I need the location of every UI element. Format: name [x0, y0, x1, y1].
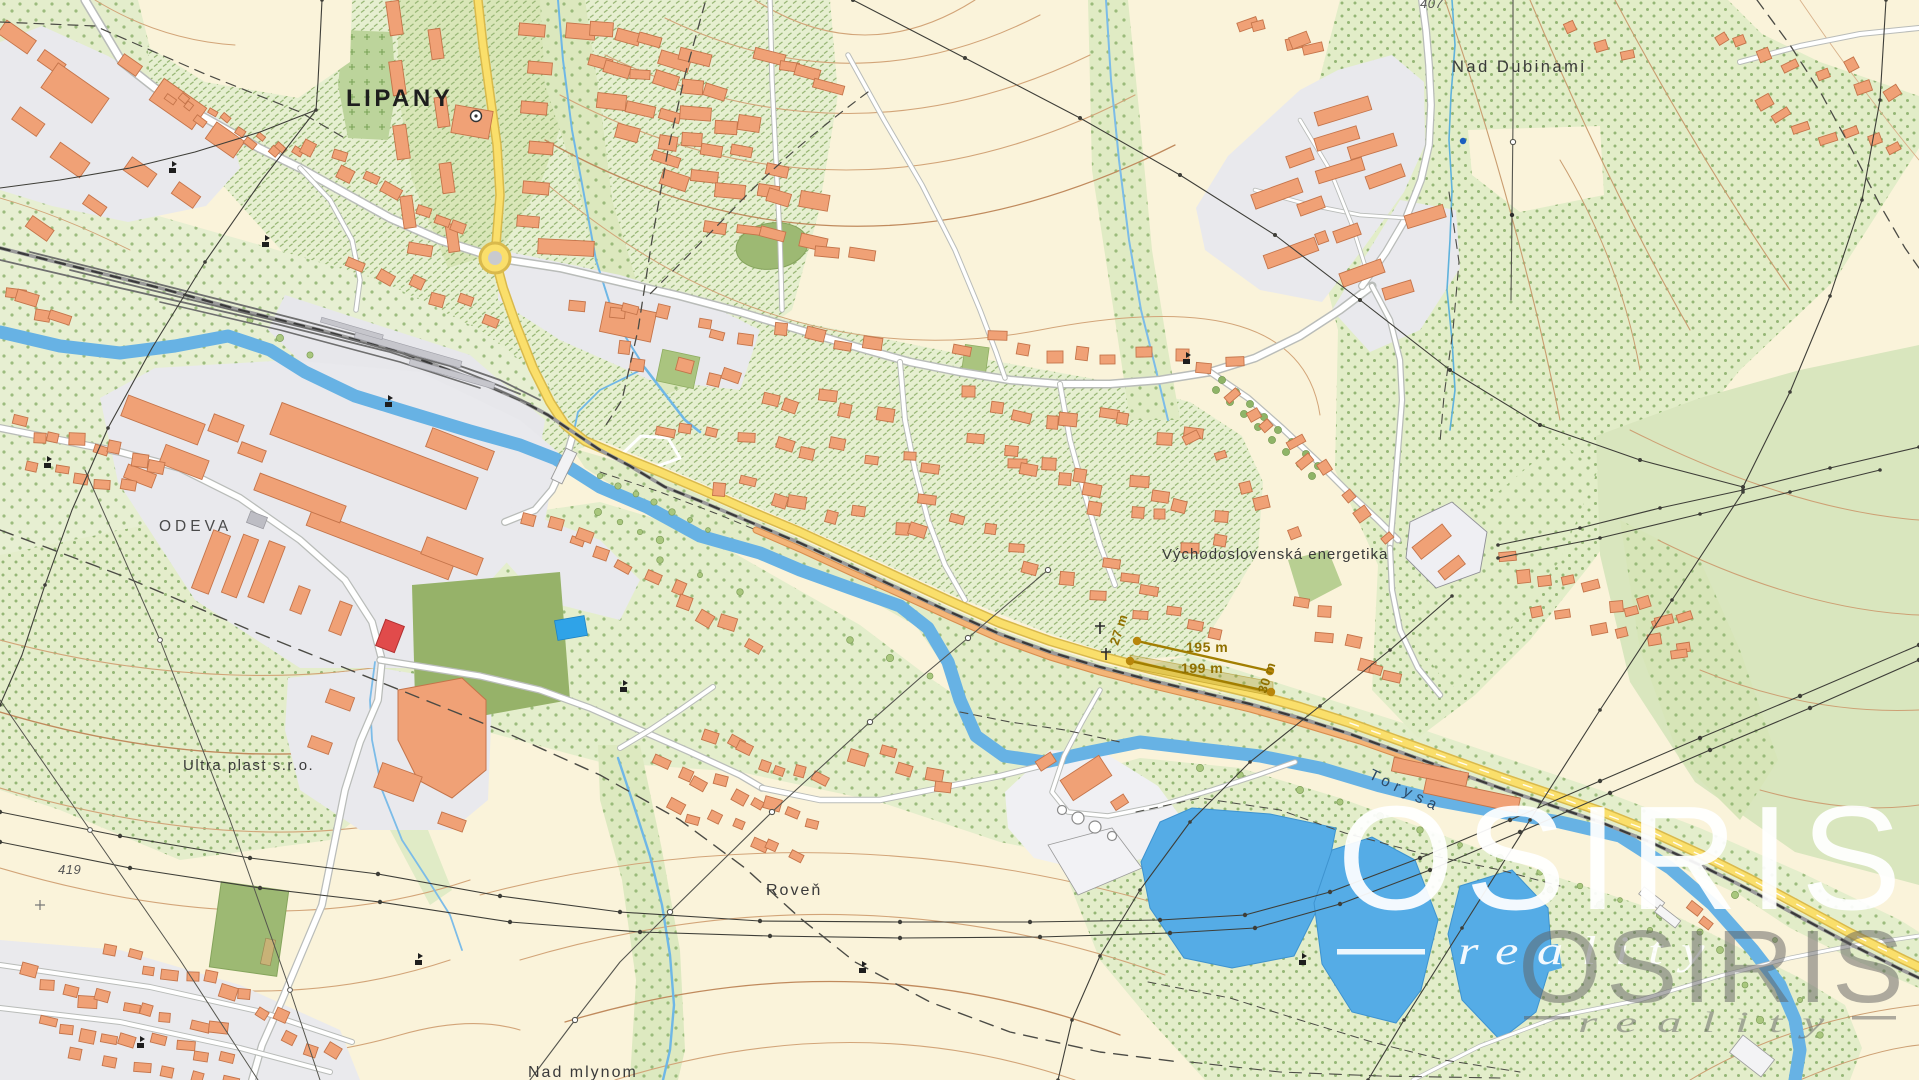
svg-text:419: 419: [58, 862, 81, 877]
svg-text:Ultra plast s.r.o.: Ultra plast s.r.o.: [183, 757, 314, 774]
svg-text:195 m: 195 m: [1186, 639, 1228, 655]
svg-text:Nad mlynom: Nad mlynom: [528, 1064, 638, 1080]
svg-text:reality: reality: [1578, 1006, 1844, 1039]
svg-text:Východoslovenská energetika: Východoslovenská energetika: [1162, 546, 1388, 563]
svg-text:ODEVA: ODEVA: [159, 518, 232, 535]
svg-text:LIPANY: LIPANY: [346, 85, 453, 112]
svg-text:407: 407: [1420, 0, 1443, 11]
svg-text:Roveň: Roveň: [766, 882, 822, 899]
svg-text:Nad Dubinami: Nad Dubinami: [1452, 58, 1587, 76]
svg-text:199 m: 199 m: [1181, 660, 1223, 676]
